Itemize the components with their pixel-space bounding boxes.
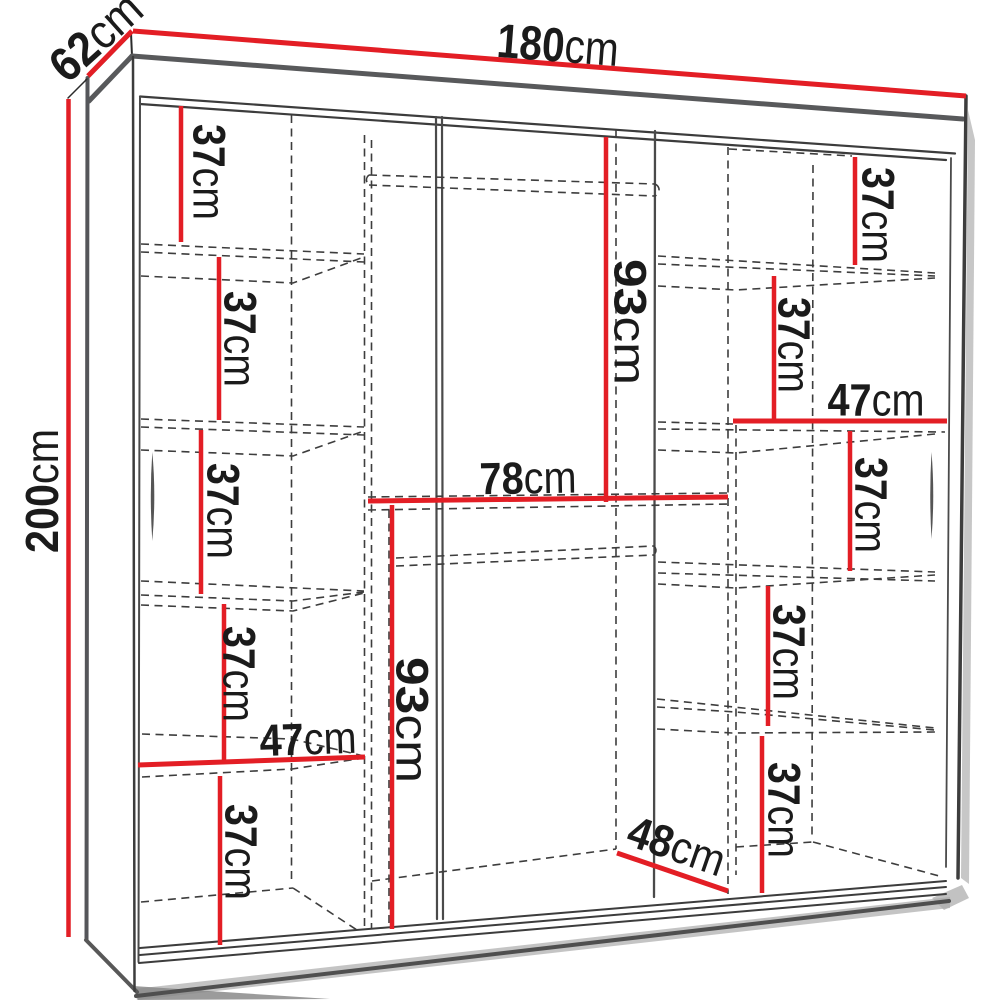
svg-text:37cm: 37cm <box>759 762 810 858</box>
svg-text:37cm: 37cm <box>769 297 820 393</box>
svg-text:37cm: 37cm <box>198 463 249 559</box>
svg-text:37cm: 37cm <box>853 167 904 263</box>
svg-text:93cm: 93cm <box>387 657 438 783</box>
svg-text:200cm: 200cm <box>16 429 68 553</box>
svg-text:47cm: 47cm <box>828 374 925 425</box>
svg-text:180cm: 180cm <box>495 15 621 77</box>
svg-text:47cm: 47cm <box>259 712 358 766</box>
svg-text:37cm: 37cm <box>216 804 267 900</box>
svg-text:37cm: 37cm <box>214 626 265 722</box>
svg-text:37cm: 37cm <box>184 124 235 220</box>
svg-text:37cm: 37cm <box>764 604 815 700</box>
svg-text:78cm: 78cm <box>479 452 577 505</box>
svg-text:93cm: 93cm <box>605 259 656 385</box>
svg-text:37cm: 37cm <box>846 457 897 553</box>
svg-text:37cm: 37cm <box>215 291 266 387</box>
